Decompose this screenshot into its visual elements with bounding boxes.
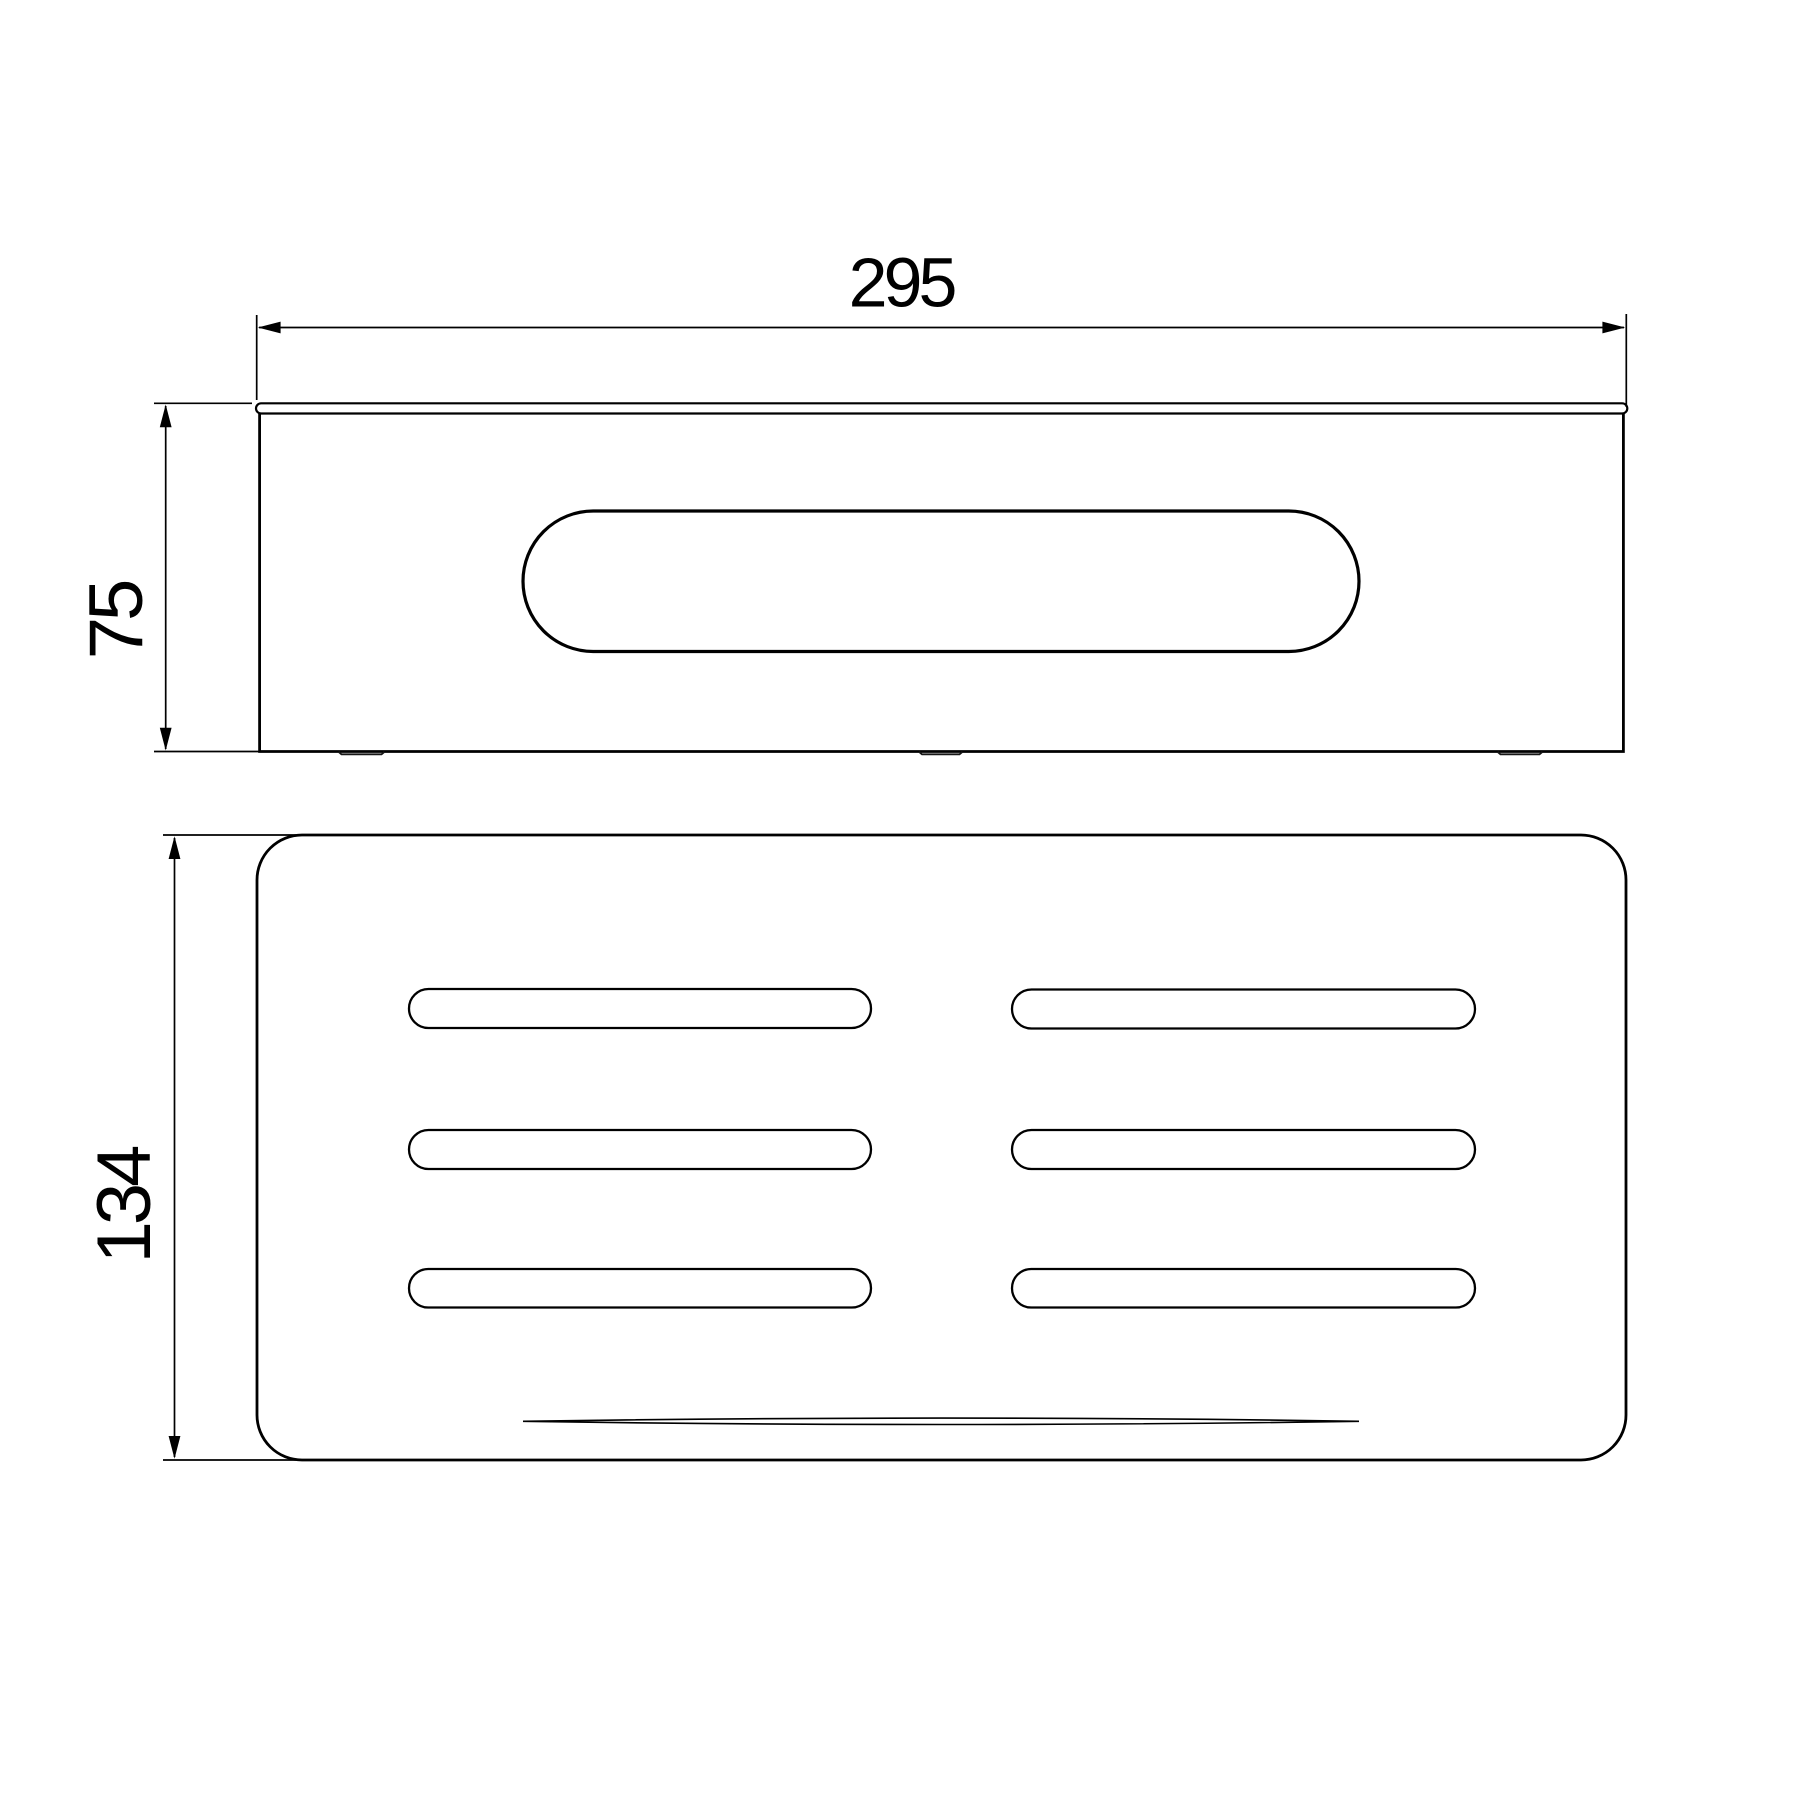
- svg-text:295: 295: [849, 244, 955, 322]
- svg-text:75: 75: [74, 581, 159, 659]
- svg-text:134: 134: [82, 1146, 167, 1264]
